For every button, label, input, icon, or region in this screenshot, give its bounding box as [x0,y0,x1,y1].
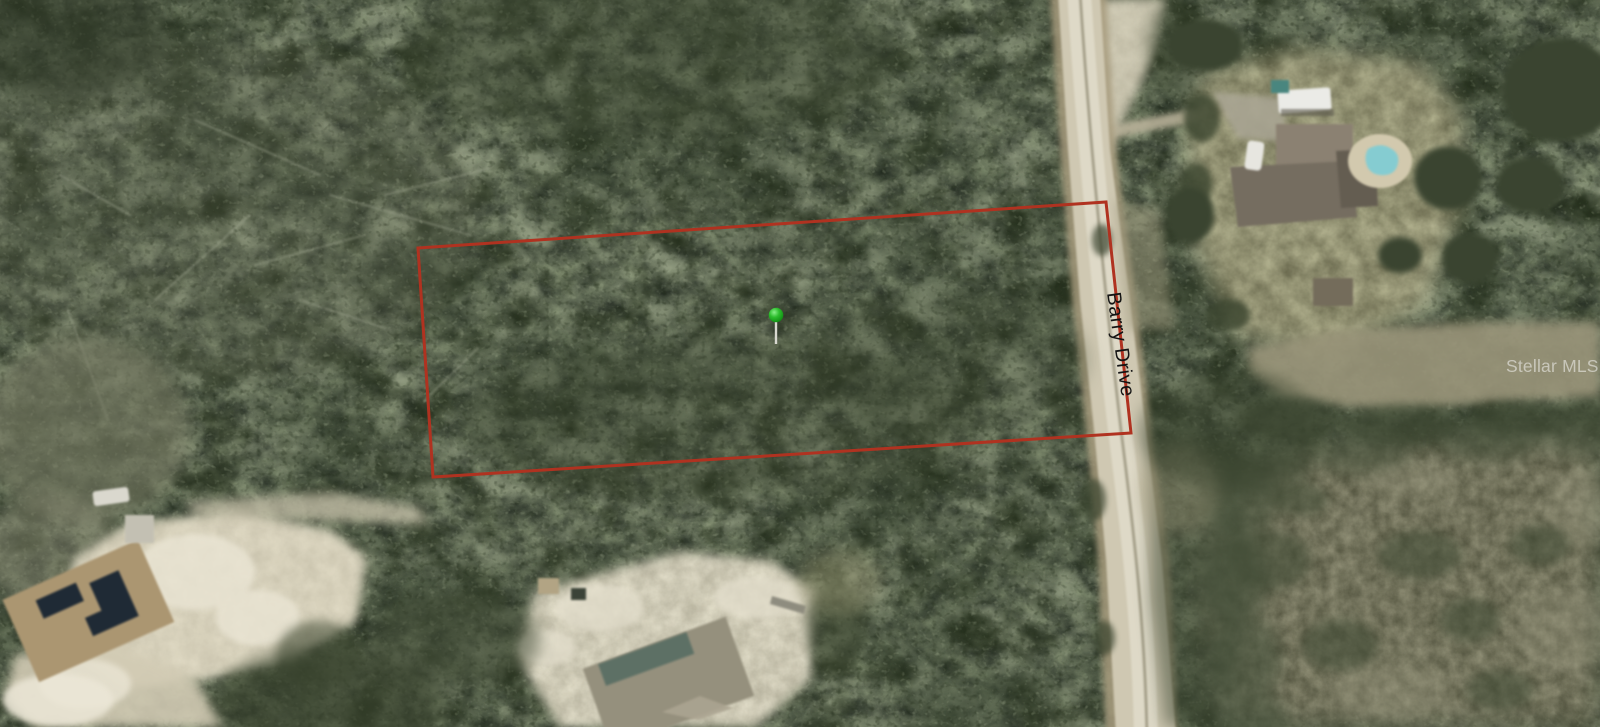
svg-text:Stellar MLS: Stellar MLS [1506,356,1599,376]
